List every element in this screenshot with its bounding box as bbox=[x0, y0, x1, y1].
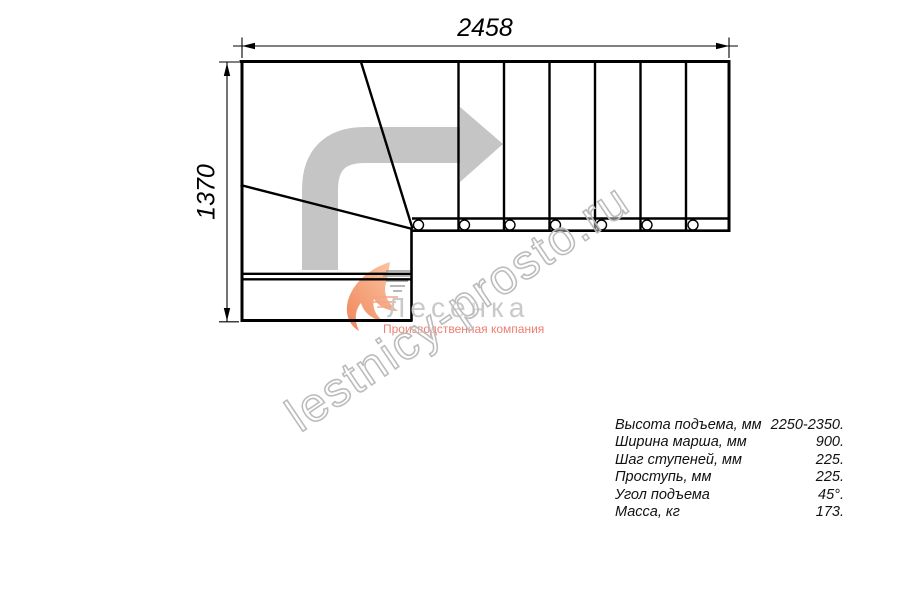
dimension-height bbox=[219, 62, 239, 322]
spec-label: Высота подъема, мм bbox=[615, 417, 762, 434]
spec-label: Проступь, мм bbox=[615, 469, 711, 486]
arrowhead-right bbox=[716, 43, 729, 49]
logo-company-name: Лесенка bbox=[387, 292, 529, 324]
arrowhead-bottom bbox=[224, 308, 230, 321]
spec-value: 225. bbox=[816, 469, 844, 486]
spec-value: 225. bbox=[816, 452, 844, 469]
baluster-circle bbox=[551, 220, 561, 230]
direction-arrow-shaft bbox=[320, 145, 460, 270]
baluster-circle bbox=[688, 220, 698, 230]
spec-row: Масса, кг 173. bbox=[615, 504, 844, 521]
stair-plan-canvas: 2458 1370 Лесенка Производственная компа… bbox=[0, 0, 900, 600]
spec-label: Масса, кг bbox=[615, 504, 680, 521]
baluster-circle bbox=[460, 220, 470, 230]
spec-label: Угол подъема bbox=[615, 487, 710, 504]
spec-value: 45°. bbox=[818, 487, 844, 504]
spec-label: Ширина марша, мм bbox=[615, 434, 747, 451]
arrowhead-top bbox=[224, 63, 230, 76]
dimension-height-label: 1370 bbox=[193, 164, 222, 220]
spec-value: 173. bbox=[816, 504, 844, 521]
direction-arrow-head bbox=[460, 107, 503, 182]
spec-row: Угол подъема 45°. bbox=[615, 487, 844, 504]
spec-label: Шаг ступеней, мм bbox=[615, 452, 742, 469]
spec-row: Ширина марша, мм 900. bbox=[615, 434, 844, 451]
arrowhead-left bbox=[242, 43, 255, 49]
spec-value: 900. bbox=[816, 434, 844, 451]
baluster-circle bbox=[642, 220, 652, 230]
baluster-circle bbox=[414, 220, 424, 230]
logo-tagline: Производственная компания bbox=[383, 322, 544, 336]
baluster-circles bbox=[414, 220, 699, 230]
spec-row: Высота подъема, мм 2250-2350. bbox=[615, 417, 844, 434]
spec-row: Проступь, мм 225. bbox=[615, 469, 844, 486]
spec-list: Высота подъема, мм 2250-2350. Ширина мар… bbox=[615, 417, 844, 521]
baluster-circle bbox=[505, 220, 515, 230]
spec-row: Шаг ступеней, мм 225. bbox=[615, 452, 844, 469]
dimension-width-label: 2458 bbox=[420, 14, 550, 43]
spec-value: 2250-2350. bbox=[771, 417, 844, 434]
baluster-circle bbox=[597, 220, 607, 230]
